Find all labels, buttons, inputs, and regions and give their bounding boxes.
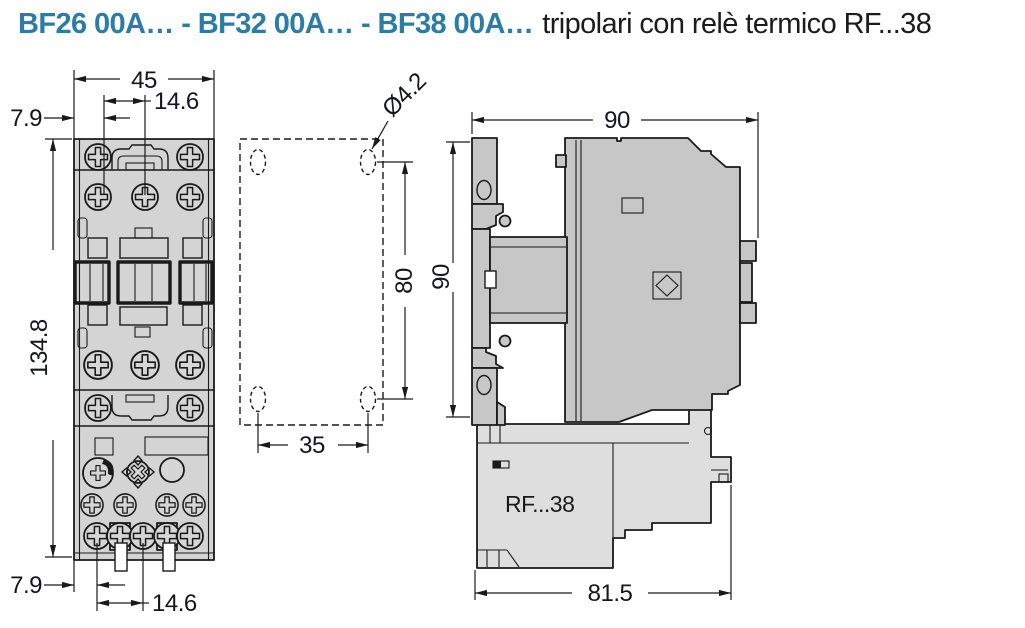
terminal-tab — [115, 543, 127, 571]
phillips-screw — [177, 395, 203, 421]
phillips-screw — [183, 494, 205, 516]
coil-terminal-tab — [740, 303, 756, 323]
din-flange-top — [472, 138, 497, 204]
dim-label-side-height: 90 — [428, 264, 455, 290]
relay-model-label: RF...38 — [505, 491, 574, 517]
phillips-screw — [176, 351, 204, 379]
mounting-hole — [251, 150, 266, 175]
phillips-screw — [131, 351, 159, 379]
dim-label-horizontal-pitch: 35 — [299, 432, 325, 459]
phillips-screw — [85, 184, 111, 210]
din-flange-bottom — [472, 368, 497, 425]
din-hook-top — [472, 204, 503, 229]
side-view: RF...38 — [428, 107, 758, 607]
mounting-hole — [361, 150, 376, 175]
dim-front-offset-top: 7.9 — [10, 105, 130, 132]
dim-label-offset-bottom: 7.9 — [10, 572, 42, 599]
din-hook-bottom — [472, 348, 503, 368]
phillips-screw — [84, 351, 112, 379]
terminal-tab — [163, 543, 175, 571]
mounting-hole — [251, 387, 266, 412]
din-release-clip — [497, 402, 505, 425]
coil-terminal-tab — [740, 241, 756, 261]
datasheet-page: BF26 00A… - BF32 00A… - BF38 00A…tripola… — [0, 0, 1025, 628]
dim-label-side-depth: 81.5 — [588, 580, 633, 607]
dim-front-height: 134.8 — [26, 139, 72, 557]
technical-drawing: 45 14.6 7.9 13 — [0, 0, 1025, 628]
dim-label-hole-diameter: Ø4.2 — [377, 68, 432, 123]
dim-hole-diameter: Ø4.2 — [372, 68, 432, 149]
drilling-plan: Ø4.2 80 35 — [240, 68, 432, 459]
dim-label-height: 134.8 — [26, 319, 53, 377]
dim-label-side-width: 90 — [604, 107, 630, 134]
phillips-screw — [177, 184, 203, 210]
mounting-hole — [361, 387, 376, 412]
phillips-screw — [85, 144, 111, 170]
phillips-screw — [177, 144, 203, 170]
test-button — [160, 458, 184, 482]
dim-label-pitch-top: 14.6 — [154, 88, 199, 115]
drilling-outline — [240, 139, 383, 425]
phillips-screw — [156, 494, 178, 516]
phillips-screw — [177, 523, 203, 549]
dim-label-pitch-bottom: 14.6 — [152, 590, 197, 617]
dim-label-offset-top: 7.9 — [10, 105, 42, 132]
phillips-screw — [114, 494, 136, 516]
side-contactor — [472, 138, 756, 425]
front-view: 45 14.6 7.9 13 — [10, 67, 214, 617]
phillips-screw — [85, 395, 111, 421]
dim-horizontal-pitch: 35 — [258, 413, 368, 459]
dim-label-vertical-pitch: 80 — [391, 268, 418, 294]
dim-side-height: 90 — [428, 142, 470, 417]
current-adjustment-dial — [83, 458, 114, 488]
din-rail-recess — [490, 237, 567, 323]
phillips-screw — [81, 494, 103, 516]
coil-terminal-tab — [740, 263, 752, 302]
